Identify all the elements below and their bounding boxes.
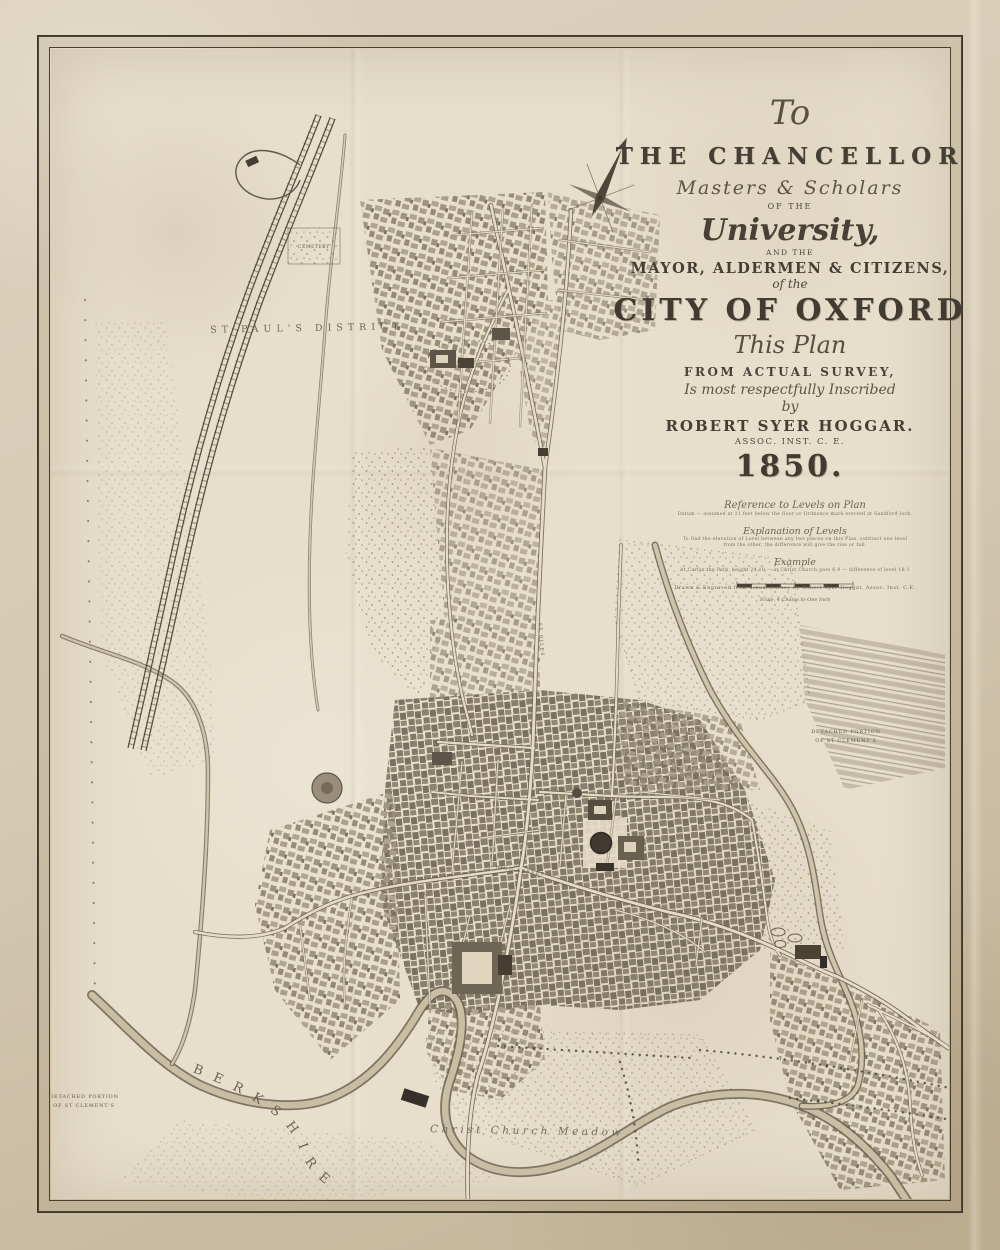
title-author: ROBERT SYER HOGGAR. — [612, 418, 968, 435]
title-inscribed: Is most respectfully Inscribed — [612, 382, 968, 398]
title-cartouche: To THE CHANCELLOR Masters & Scholars OF … — [612, 94, 968, 483]
dedication-to: To — [612, 94, 968, 132]
reference-title: Reference to Levels on Plan — [645, 500, 945, 512]
example-title: Example — [645, 557, 945, 568]
title-this-plan: This Plan — [612, 331, 968, 359]
title-university: University, — [612, 214, 968, 248]
title-from-survey: FROM ACTUAL SURVEY, — [612, 365, 968, 379]
imprint-line: Drawn & Engraved from actual Survey by R… — [645, 585, 945, 592]
explanation-line2: from the other, the difference will give… — [645, 543, 945, 549]
title-city-of-oxford: CITY OF OXFORD — [612, 294, 968, 328]
title-by: by — [612, 400, 968, 414]
title-year: 1850. — [612, 451, 968, 483]
title-of-the: OF THE — [612, 202, 968, 212]
example-line: At Carfax the Path, height 24.10 — at Ch… — [645, 568, 945, 574]
title-and-the: AND THE — [612, 248, 968, 257]
title-mayor-line: MAYOR, ALDERMEN & CITIZENS, — [612, 260, 968, 277]
explanation-title: Explanation of Levels — [645, 526, 945, 537]
reference-line: Datum — assumed at 11 feet below the flo… — [645, 512, 945, 518]
title-chancellor: THE CHANCELLOR — [612, 144, 968, 170]
title-of-the-2: of the — [612, 277, 968, 291]
title-masters-scholars: Masters & Scholars — [612, 176, 968, 200]
title-assoc: ASSOC. INST. C. E. — [612, 437, 968, 447]
scale-label: Scale, 4 Chains to One Inch — [645, 597, 945, 604]
reference-block: Reference to Levels on Plan Datum — assu… — [645, 500, 945, 604]
map-sheet: ST PAUL'S DISTRICT B E R K S H I R E Chr… — [0, 0, 1000, 1250]
